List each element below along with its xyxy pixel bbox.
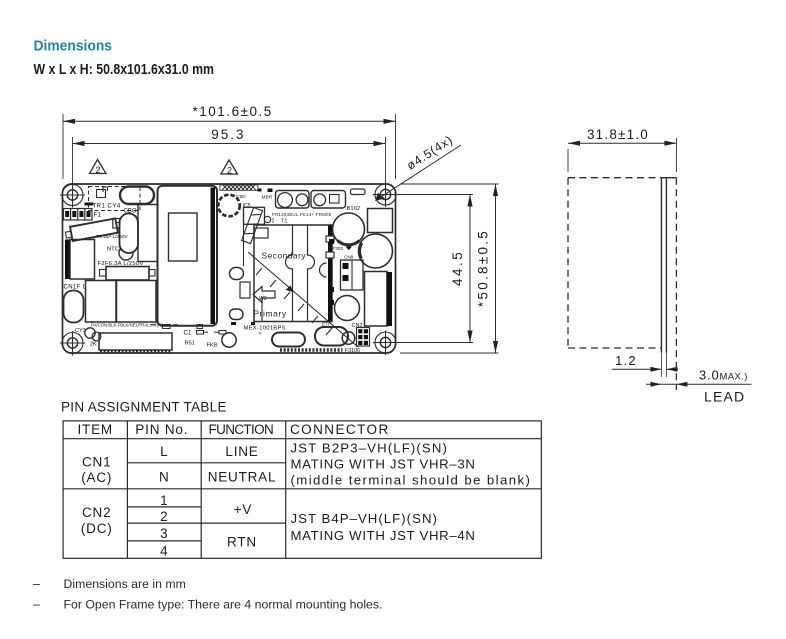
svg-text:CN1F L: CN1F L (64, 285, 87, 291)
svg-text:TR1 CY4: TR1 CY4 (93, 204, 121, 210)
svg-text:95.3: 95.3 (211, 127, 245, 142)
svg-text:2: 2 (227, 166, 232, 176)
svg-text:–: – (33, 577, 40, 591)
svg-text:F3106: F3106 (345, 348, 360, 354)
svg-text:MBR: MBR (262, 195, 273, 201)
svg-text:FR1403BUL FK14+ FRM05: FR1403BUL FK14+ FRM05 (272, 212, 332, 217)
svg-text:NEUTRAL: NEUTRAL (208, 470, 277, 485)
svg-text:Dimensions are in mm: Dimensions are in mm (64, 577, 186, 591)
svg-text:Dimensions: Dimensions (34, 38, 113, 55)
svg-text:ITEM: ITEM (77, 422, 112, 437)
svg-text:(middle terminal should be bla: (middle terminal should be blank) (291, 473, 531, 488)
svg-text:(DC): (DC) (81, 521, 113, 536)
svg-text:Primary: Primary (253, 309, 287, 319)
svg-text:MATING WITH JST VHR–3N: MATING WITH JST VHR–3N (291, 457, 476, 472)
svg-text:FKB: FKB (207, 343, 218, 349)
svg-text:LINE: LINE (225, 444, 258, 459)
svg-text:CN1: CN1 (82, 455, 111, 470)
svg-text:T3.15A L/250V: T3.15A L/250V (96, 234, 129, 240)
svg-text:W3: W3 (259, 296, 267, 302)
svg-text:MEX-1001BPS: MEX-1001BPS (244, 326, 286, 332)
svg-text:N: N (159, 470, 170, 485)
svg-text:4: 4 (160, 544, 168, 559)
svg-text:44.5: 44.5 (450, 251, 465, 286)
svg-text:CN2: CN2 (82, 505, 111, 520)
svg-text:CY3: CY3 (75, 328, 86, 334)
svg-text:*101.6±0.5: *101.6±0.5 (193, 104, 273, 119)
svg-text:Secondary: Secondary (262, 251, 307, 261)
svg-text:T1: T1 (281, 219, 287, 225)
svg-text:C5D: C5D (236, 194, 246, 200)
svg-text:F1: F1 (94, 212, 102, 219)
svg-text:W x L x H: 50.8x101.6x31.0 mm: W x L x H: 50.8x101.6x31.0 mm (34, 62, 215, 78)
svg-text:JST B4P–VH(LF)(SN): JST B4P–VH(LF)(SN) (291, 511, 438, 526)
svg-text:1.2: 1.2 (615, 353, 637, 368)
svg-text:–: – (33, 598, 40, 612)
svg-text:2: 2 (160, 509, 168, 524)
svg-text:31.8±1.0: 31.8±1.0 (587, 127, 649, 142)
svg-text:B102: B102 (347, 206, 361, 212)
svg-text:JST B2P3–VH(LF)(SN): JST B2P3–VH(LF)(SN) (291, 441, 448, 456)
svg-text:*50.8±0.5: *50.8±0.5 (476, 230, 491, 307)
svg-text:+V: +V (234, 502, 253, 517)
svg-text:3: 3 (160, 526, 168, 541)
svg-text:PIN No.: PIN No. (135, 422, 188, 437)
svg-text:C1: C1 (184, 330, 192, 337)
svg-text:PIN ASSIGNMENT TABLE: PIN ASSIGNMENT TABLE (61, 400, 227, 415)
svg-text:2: 2 (95, 165, 100, 175)
svg-text:R51: R51 (185, 341, 196, 347)
svg-text:CN8: CN8 (344, 255, 354, 260)
svg-text:CBO: CBO (124, 209, 137, 215)
svg-text:CONNECTOR: CONNECTOR (290, 422, 389, 437)
svg-text:MATING WITH JST VHR–4N: MATING WITH JST VHR–4N (291, 528, 476, 543)
svg-text:1: 1 (160, 493, 168, 508)
svg-text:2K: 2K (90, 342, 97, 348)
svg-text:For Open Frame type: There are: For Open Frame type: There are 4 normal … (64, 598, 383, 612)
svg-text:(AC): (AC) (81, 470, 112, 485)
svg-text:F303: F303 (333, 246, 344, 251)
svg-text:LEAD: LEAD (704, 389, 745, 405)
svg-text:2: 2 (272, 219, 275, 225)
svg-text:FUNCTION: FUNCTION (209, 422, 275, 437)
svg-text:NTC1: NTC1 (107, 247, 122, 253)
svg-text:L: L (160, 444, 168, 459)
svg-text:RTN: RTN (227, 535, 257, 550)
